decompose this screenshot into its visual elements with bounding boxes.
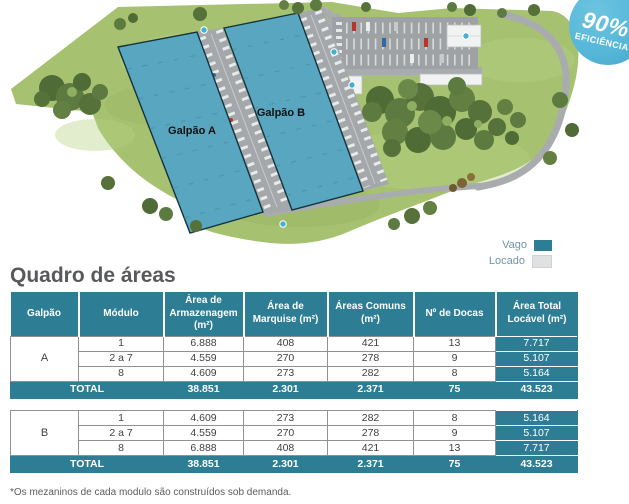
table-row: 2 a 7 4.559 270 278 9 5.107 [11,351,578,366]
cell-armazenagem: 4.609 [164,366,244,381]
cell-comuns: 421 [328,441,414,456]
table-row: 8 4.609 273 282 8 5.164 [11,366,578,381]
cell-marquise: 270 [244,351,328,366]
legend-item-locado: Locado [489,255,552,268]
table-row: 2 a 7 4.559 270 278 9 5.107 [11,426,578,441]
table-total-row: TOTAL 38.851 2.301 2.371 75 43.523 [11,381,578,398]
cell-docas: 8 [414,366,496,381]
cell-docas: 13 [414,441,496,456]
legend-label-locado: Locado [489,256,525,267]
cell-modulo: 8 [79,366,164,381]
cell-comuns: 282 [328,366,414,381]
header-total-locavel: Área Total Locável (m²) [496,292,578,336]
cell-total-locavel: 43.523 [496,381,578,398]
table-row: A 1 6.888 408 421 13 7.717 [11,336,578,351]
cell-armazenagem: 4.609 [164,411,244,426]
cell-total-docas: 75 [414,381,496,398]
cell-marquise: 273 [244,411,328,426]
cell-marquise: 408 [244,336,328,351]
legend-label-vago: Vago [502,240,527,251]
cell-galpao: A [11,336,79,381]
cell-total: 5.164 [496,411,578,426]
cell-docas: 8 [414,411,496,426]
legend: Vago Locado [489,240,552,272]
cell-modulo: 1 [79,336,164,351]
cell-docas: 9 [414,351,496,366]
efficiency-badge-content: 90% EFICIÊNCIA [574,7,629,53]
footnote: *Os mezaninos de cada modulo são constru… [10,487,291,498]
cell-total: 5.107 [496,426,578,441]
header-modulo: Módulo [79,292,164,336]
table-row: B 1 4.609 273 282 8 5.164 [11,411,578,426]
table-galpao-b: B 1 4.609 273 282 8 5.164 2 a 7 4.559 27… [10,410,578,473]
header-comuns: Áreas Comuns (m²) [328,292,414,336]
header-docas: Nº de Docas [414,292,496,336]
header-galpao: Galpão [11,292,79,336]
cell-total-marquise: 2.301 [244,381,328,398]
cell-armazenagem: 6.888 [164,336,244,351]
cell-total-locavel: 43.523 [496,456,578,473]
cell-total-armazenagem: 38.851 [164,456,244,473]
cell-marquise: 408 [244,441,328,456]
cell-total: 5.107 [496,351,578,366]
table-row: 8 6.888 408 421 13 7.717 [11,441,578,456]
cell-total: 7.717 [496,441,578,456]
header-armazenagem: Área de Armazenagem (m²) [164,292,244,336]
table-header-row: Galpão Módulo Área de Armazenagem (m²) Á… [11,292,578,336]
cell-modulo: 8 [79,441,164,456]
table-total-row: TOTAL 38.851 2.301 2.371 75 43.523 [11,456,578,473]
cell-total: 7.717 [496,336,578,351]
cell-marquise: 270 [244,426,328,441]
cell-comuns: 282 [328,411,414,426]
legend-swatch-vago [534,240,552,251]
cell-comuns: 278 [328,426,414,441]
cell-total-label: TOTAL [11,381,164,398]
cell-docas: 13 [414,336,496,351]
cell-modulo: 2 a 7 [79,426,164,441]
cell-modulo: 1 [79,411,164,426]
galpao-a-label: Galpão A [168,125,216,137]
page-title: Quadro de áreas [10,264,176,288]
site-plan-map: Galpão A Galpão B [0,0,629,250]
cell-armazenagem: 6.888 [164,441,244,456]
header-marquise: Área de Marquise (m²) [244,292,328,336]
cell-total-comuns: 2.371 [328,381,414,398]
cell-modulo: 2 a 7 [79,351,164,366]
cell-armazenagem: 4.559 [164,426,244,441]
cell-total-armazenagem: 38.851 [164,381,244,398]
galpao-b-label: Galpão B [257,107,305,119]
cell-comuns: 278 [328,351,414,366]
cell-total: 5.164 [496,366,578,381]
page: Galpão A Galpão B 90% EFICIÊNCIA Vago Lo… [0,0,629,504]
cell-total-marquise: 2.301 [244,456,328,473]
legend-swatch-locado [532,255,552,268]
cell-comuns: 421 [328,336,414,351]
cell-total-comuns: 2.371 [328,456,414,473]
cell-total-docas: 75 [414,456,496,473]
cell-total-label: TOTAL [11,456,164,473]
cell-docas: 9 [414,426,496,441]
cell-galpao: B [11,411,79,456]
table-galpao-a: Galpão Módulo Área de Armazenagem (m²) Á… [10,292,578,399]
cell-marquise: 273 [244,366,328,381]
cell-armazenagem: 4.559 [164,351,244,366]
legend-item-vago: Vago [489,240,552,251]
